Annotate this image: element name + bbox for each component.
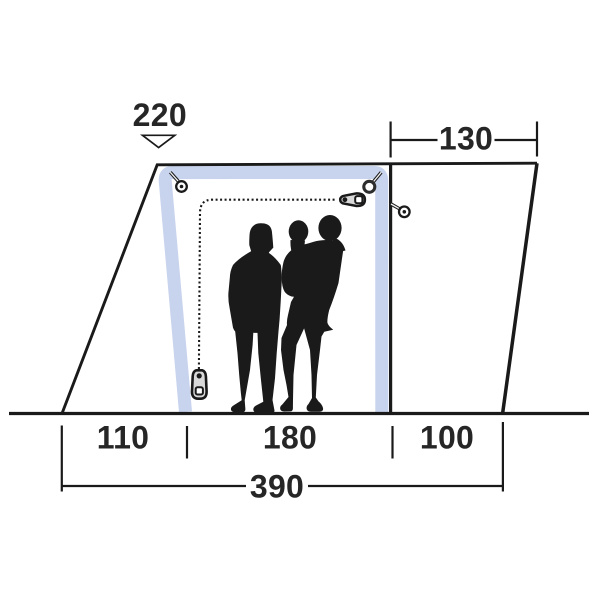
svg-text:220: 220	[133, 97, 187, 133]
svg-text:130: 130	[439, 121, 493, 157]
svg-text:390: 390	[250, 469, 304, 505]
svg-text:110: 110	[97, 420, 150, 456]
svg-text:100: 100	[420, 420, 474, 456]
svg-text:180: 180	[263, 420, 317, 456]
